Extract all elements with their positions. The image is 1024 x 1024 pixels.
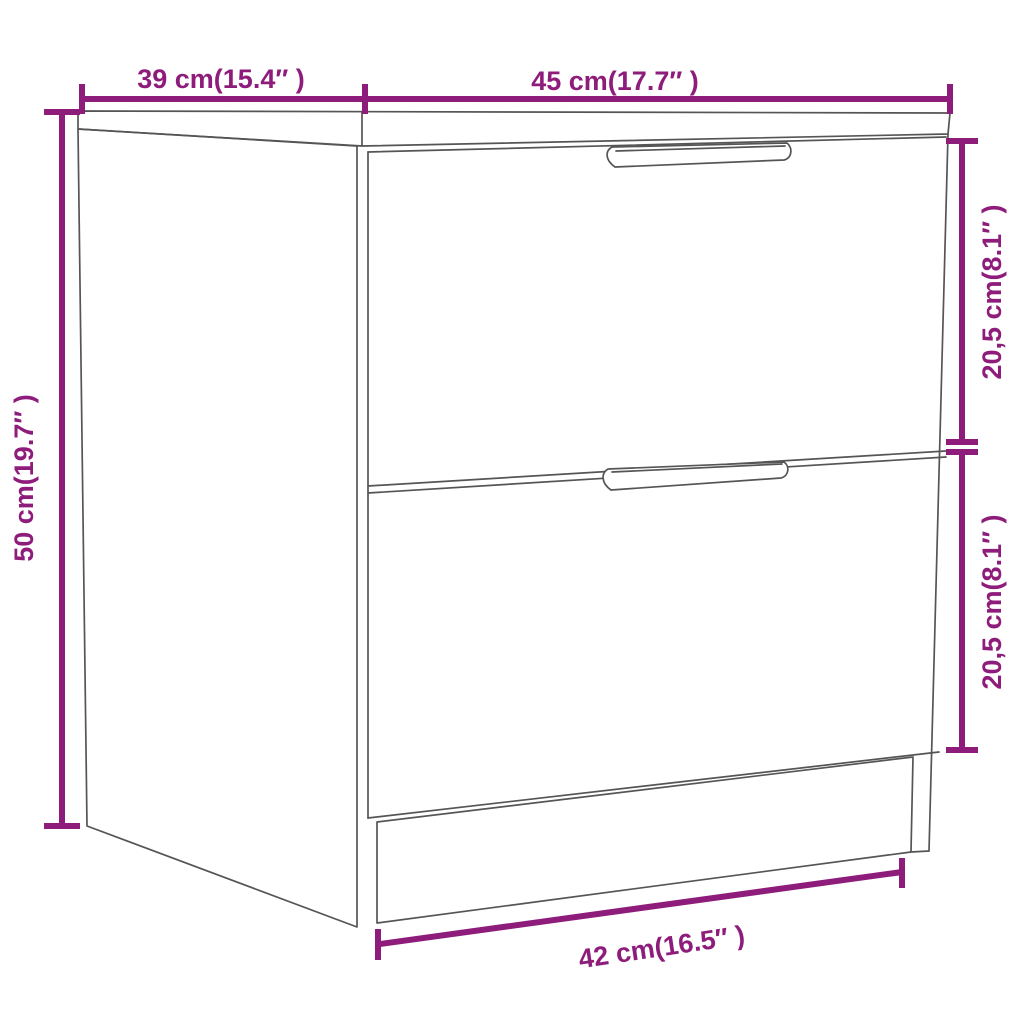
dimension-lower-drawer bbox=[946, 452, 978, 750]
cabinet-drawing bbox=[78, 111, 950, 927]
dimension-labels: 39 cm(15.4″ ) 45 cm(17.7″ ) 50 cm(19.7″ … bbox=[9, 64, 1007, 974]
label-top-width: 45 cm(17.7″ ) bbox=[531, 66, 699, 96]
dimension-upper-drawer bbox=[946, 141, 978, 442]
label-height: 50 cm(19.7″ ) bbox=[9, 394, 39, 562]
label-upper-drawer: 20,5 cm(8.1″ ) bbox=[977, 204, 1007, 379]
dimension-diagram: 39 cm(15.4″ ) 45 cm(17.7″ ) 50 cm(19.7″ … bbox=[0, 0, 1024, 1024]
dimension-lines bbox=[44, 84, 978, 960]
dimension-height bbox=[44, 112, 80, 826]
drawer-lower-bottom-edge bbox=[368, 752, 939, 818]
cabinet-front-frame bbox=[368, 134, 948, 851]
cabinet-base-plinth bbox=[377, 757, 929, 923]
cabinet-side-panel bbox=[78, 129, 357, 927]
drawer-handle-lower bbox=[603, 462, 788, 490]
label-base-width: 42 cm(16.5″ ) bbox=[577, 920, 747, 974]
dim-base-line bbox=[380, 872, 902, 944]
label-top-depth: 39 cm(15.4″ ) bbox=[137, 64, 305, 94]
label-lower-drawer: 20,5 cm(8.1″ ) bbox=[977, 514, 1007, 689]
diagram-canvas: 39 cm(15.4″ ) 45 cm(17.7″ ) 50 cm(19.7″ … bbox=[0, 0, 1024, 1024]
